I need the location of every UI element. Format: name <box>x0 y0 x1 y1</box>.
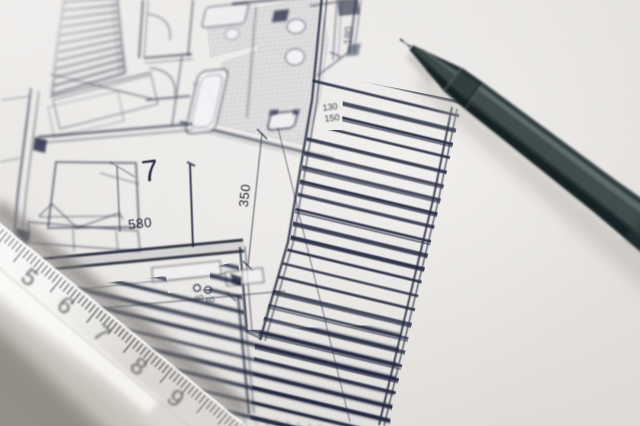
svg-text:130: 130 <box>322 101 338 113</box>
svg-text:350: 350 <box>236 183 254 208</box>
svg-text:150: 150 <box>324 112 340 124</box>
svg-text:580: 580 <box>127 215 152 232</box>
svg-text:180: 180 <box>342 26 356 45</box>
